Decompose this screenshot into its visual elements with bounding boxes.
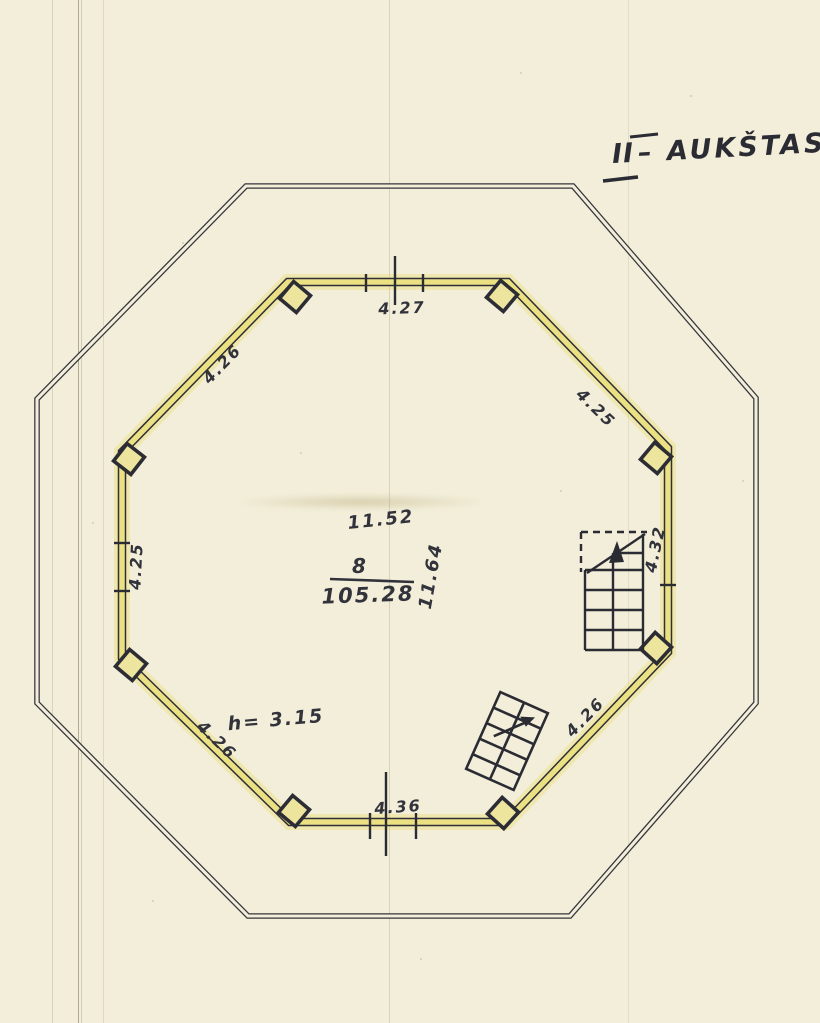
floor-numeral: II [611,138,635,170]
lower-staircase [466,692,548,790]
dimension-label-bottom: 4.36 [374,796,423,818]
title-underline [603,177,638,181]
scanned-drawing-sheet: II– AUKŠTAS 4.27 4.26 4.25 4.25 4.32 4.2… [0,0,820,1023]
upper-staircase [581,532,647,650]
dimension-ticks [114,256,676,856]
dimension-label-top: 4.27 [378,298,426,319]
room-area-label: 105.28 [321,581,415,608]
dimension-label-left: 4.25 [125,542,146,590]
room-number-label: 8 [352,554,368,578]
